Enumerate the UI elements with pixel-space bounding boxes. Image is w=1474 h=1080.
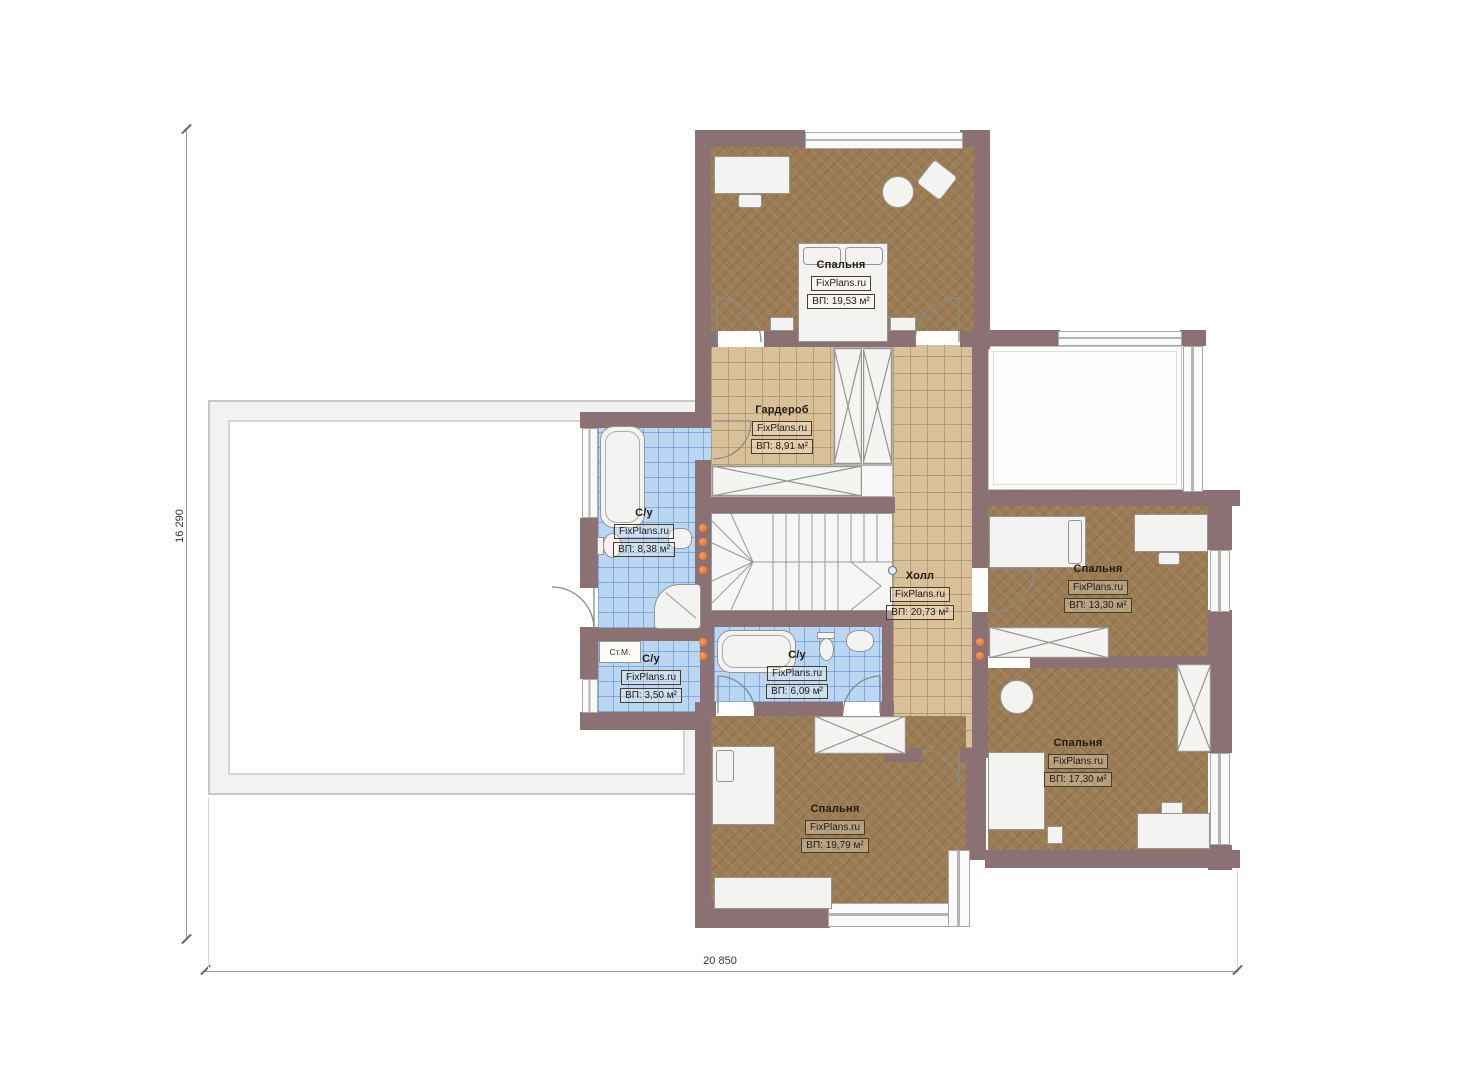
desk xyxy=(1137,813,1210,849)
door-arc xyxy=(990,568,1035,613)
watermark-label: FixPlans.ru xyxy=(614,524,674,539)
radiator-marker xyxy=(976,638,984,646)
room-name: Гардероб xyxy=(722,404,842,416)
room-label-bath-left: С/у FixPlans.ru ВП: 8,38 м² xyxy=(584,507,704,557)
room-name: Спальня xyxy=(775,803,895,815)
dimension-line-vertical xyxy=(186,130,187,940)
desk xyxy=(714,156,790,194)
radiator-marker xyxy=(699,638,707,646)
room-area: ВП: 3,50 м² xyxy=(620,688,682,703)
room-name: С/у xyxy=(591,653,711,665)
wall-segment xyxy=(882,627,893,711)
extension-line xyxy=(208,797,209,969)
desk xyxy=(1134,514,1208,552)
wall-segment xyxy=(580,712,711,730)
room-label-bath-small: С/у FixPlans.ru ВП: 3,50 м² xyxy=(591,653,711,703)
dimension-tick xyxy=(200,965,211,976)
window xyxy=(1210,550,1230,612)
pillow xyxy=(1068,520,1082,564)
room-area: ВП: 19,53 м² xyxy=(807,294,874,309)
chair xyxy=(738,194,762,208)
wardrobe-x xyxy=(989,627,1109,658)
extension-line xyxy=(1237,870,1238,969)
window xyxy=(948,850,970,927)
door-arc xyxy=(921,749,960,788)
radiator-marker xyxy=(976,652,984,660)
wall-segment xyxy=(695,497,895,513)
wall-segment xyxy=(974,330,1060,346)
wardrobe-x xyxy=(814,716,906,754)
room-label-bedroom-right: Спальня FixPlans.ru ВП: 13,30 м² xyxy=(1038,563,1158,613)
wall-segment xyxy=(985,490,1240,506)
room-label-bedroom-bottom: Спальня FixPlans.ru ВП: 19,79 м² xyxy=(775,803,895,853)
room-label-hall: Холл FixPlans.ru ВП: 20,73 м² xyxy=(860,570,980,620)
window xyxy=(582,428,598,518)
room-area: ВП: 8,91 м² xyxy=(751,439,813,454)
room-area: ВП: 20,73 м² xyxy=(886,605,953,620)
wall-segment xyxy=(1208,506,1232,550)
room-label-bedroom-bottom-right: Спальня FixPlans.ru ВП: 17,30 м² xyxy=(1018,737,1138,787)
wall-segment xyxy=(972,347,988,568)
watermark-label: FixPlans.ru xyxy=(1048,754,1108,769)
watermark-label: FixPlans.ru xyxy=(890,587,950,602)
room-area: ВП: 6,09 м² xyxy=(766,684,828,699)
room-area: ВП: 19,79 м² xyxy=(801,838,868,853)
room-name: Спальня xyxy=(1018,737,1138,749)
wardrobe-x xyxy=(712,466,862,496)
watermark-label: FixPlans.ru xyxy=(767,666,827,681)
window xyxy=(1183,346,1203,492)
wall-segment xyxy=(960,130,990,147)
wall-segment xyxy=(966,748,986,860)
watermark-label: FixPlans.ru xyxy=(1068,580,1128,595)
wall-segment xyxy=(985,850,1240,868)
nightstand xyxy=(1047,826,1063,844)
balcony-floor-inner xyxy=(993,351,1177,485)
round-table xyxy=(882,176,914,208)
nightstand xyxy=(890,317,916,331)
room-name: Холл xyxy=(860,570,980,582)
wardrobe-x xyxy=(1177,664,1211,752)
wall-segment xyxy=(754,702,843,716)
dimension-label-horizontal: 20 850 xyxy=(680,955,760,967)
room-label-bedroom-top: Спальня FixPlans.ru ВП: 19,53 м² xyxy=(781,259,901,309)
room-label-wardrobe: Гардероб FixPlans.ru ВП: 8,91 м² xyxy=(722,404,842,454)
floor-plan-canvas: 16 290 20 850 xyxy=(0,0,1474,1080)
window xyxy=(1210,753,1230,845)
dimension-line-horizontal xyxy=(205,971,1238,972)
room-name: С/у xyxy=(737,649,857,661)
chair xyxy=(1158,552,1180,565)
watermark-label: FixPlans.ru xyxy=(805,820,865,835)
nightstand xyxy=(770,317,794,331)
door-arc xyxy=(914,297,960,343)
radiator-marker xyxy=(699,566,707,574)
room-name: Спальня xyxy=(781,259,901,271)
room-label-bath-middle: С/у FixPlans.ru ВП: 6,09 м² xyxy=(737,649,857,699)
watermark-label: FixPlans.ru xyxy=(811,276,871,291)
room-name: Спальня xyxy=(1038,563,1158,575)
shower xyxy=(654,584,701,629)
wall-segment xyxy=(695,702,711,928)
wall-segment xyxy=(695,130,711,422)
wardrobe-x xyxy=(863,348,892,464)
wall-segment xyxy=(1180,330,1206,346)
room-area: ВП: 17,30 м² xyxy=(1044,772,1111,787)
door-arc xyxy=(716,297,762,343)
wall-segment xyxy=(972,612,988,758)
pillow xyxy=(716,750,734,782)
dimension-label-vertical: 16 290 xyxy=(174,486,186,566)
room-area: ВП: 8,38 м² xyxy=(613,542,675,557)
watermark-label: FixPlans.ru xyxy=(752,421,812,436)
wall-segment xyxy=(580,628,711,641)
wall-segment xyxy=(974,147,990,349)
dresser xyxy=(714,877,832,909)
shelf xyxy=(1161,802,1183,814)
room-hall-floor xyxy=(893,345,972,748)
wall-segment xyxy=(695,130,805,147)
room-name: С/у xyxy=(584,507,704,519)
door-arc xyxy=(551,586,595,630)
window xyxy=(805,132,963,149)
window xyxy=(828,903,956,927)
watermark-label: FixPlans.ru xyxy=(621,670,681,685)
wall-segment xyxy=(695,331,718,347)
wall-segment xyxy=(1208,610,1232,753)
window xyxy=(1058,331,1182,346)
room-area: ВП: 13,30 м² xyxy=(1064,598,1131,613)
wall-segment xyxy=(580,412,711,428)
armchair xyxy=(1000,680,1034,714)
